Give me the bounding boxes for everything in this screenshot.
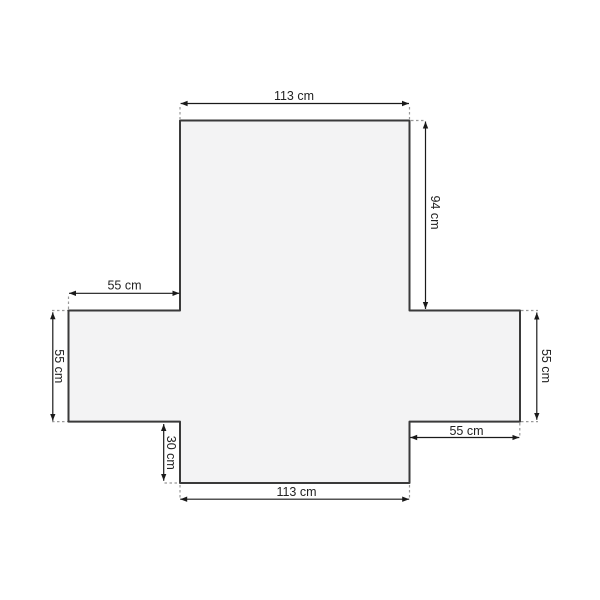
svg-text:113 cm: 113 cm — [274, 89, 314, 103]
svg-text:55 cm: 55 cm — [449, 424, 483, 438]
svg-text:113 cm: 113 cm — [276, 485, 316, 499]
svg-text:30 cm: 30 cm — [164, 436, 178, 470]
svg-text:55 cm: 55 cm — [107, 279, 141, 293]
svg-text:55 cm: 55 cm — [52, 349, 66, 383]
svg-text:94 cm: 94 cm — [428, 195, 442, 229]
svg-text:55 cm: 55 cm — [539, 349, 553, 383]
